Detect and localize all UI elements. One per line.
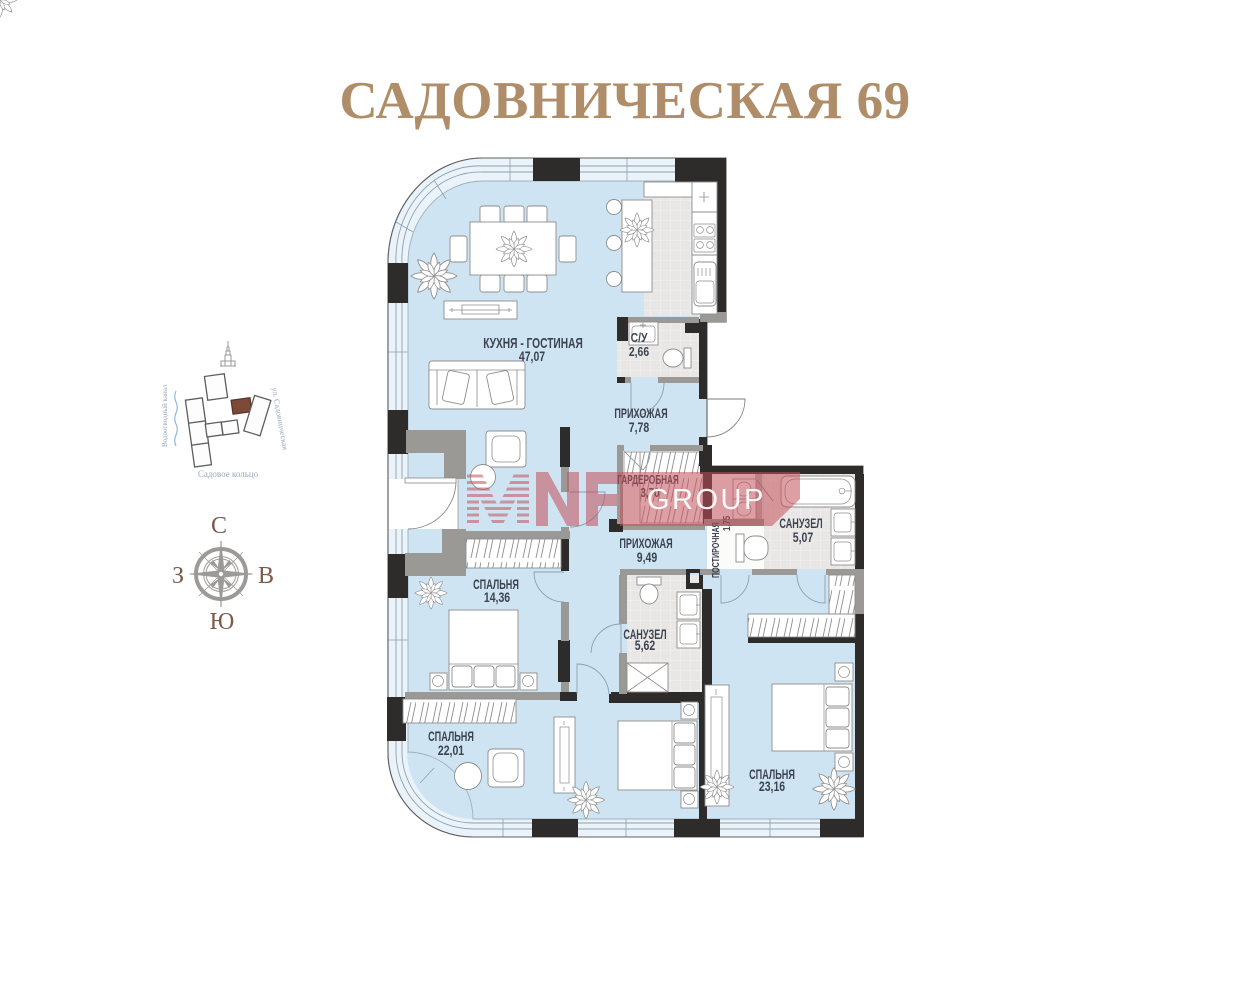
svg-text:GROUP: GROUP: [647, 484, 766, 516]
svg-text:22,01: 22,01: [438, 743, 464, 759]
svg-text:В: В: [258, 563, 274, 589]
svg-text:З: З: [172, 563, 184, 589]
svg-text:Ю: Ю: [210, 609, 235, 635]
svg-text:С/У: С/У: [631, 331, 648, 345]
svg-text:9,49: 9,49: [637, 550, 658, 566]
svg-text:Водоотводный канал: Водоотводный канал: [161, 384, 169, 447]
svg-text:Садовое кольцо: Садовое кольцо: [198, 469, 259, 479]
svg-text:7,78: 7,78: [629, 420, 650, 436]
svg-text:47,07: 47,07: [519, 349, 545, 365]
svg-text:ул. Садовническая: ул. Садовническая: [270, 387, 290, 451]
svg-text:14,36: 14,36: [484, 590, 510, 606]
svg-text:5,07: 5,07: [793, 530, 814, 546]
svg-text:2,66: 2,66: [629, 345, 650, 359]
svg-text:САДОВНИЧЕСКАЯ 69: САДОВНИЧЕСКАЯ 69: [339, 72, 910, 130]
svg-text:5,62: 5,62: [635, 638, 656, 654]
svg-text:23,16: 23,16: [759, 779, 785, 795]
svg-text:С: С: [211, 513, 227, 539]
svg-text:ПОСТИРОЧНАЯ: ПОСТИРОЧНАЯ: [710, 522, 722, 578]
